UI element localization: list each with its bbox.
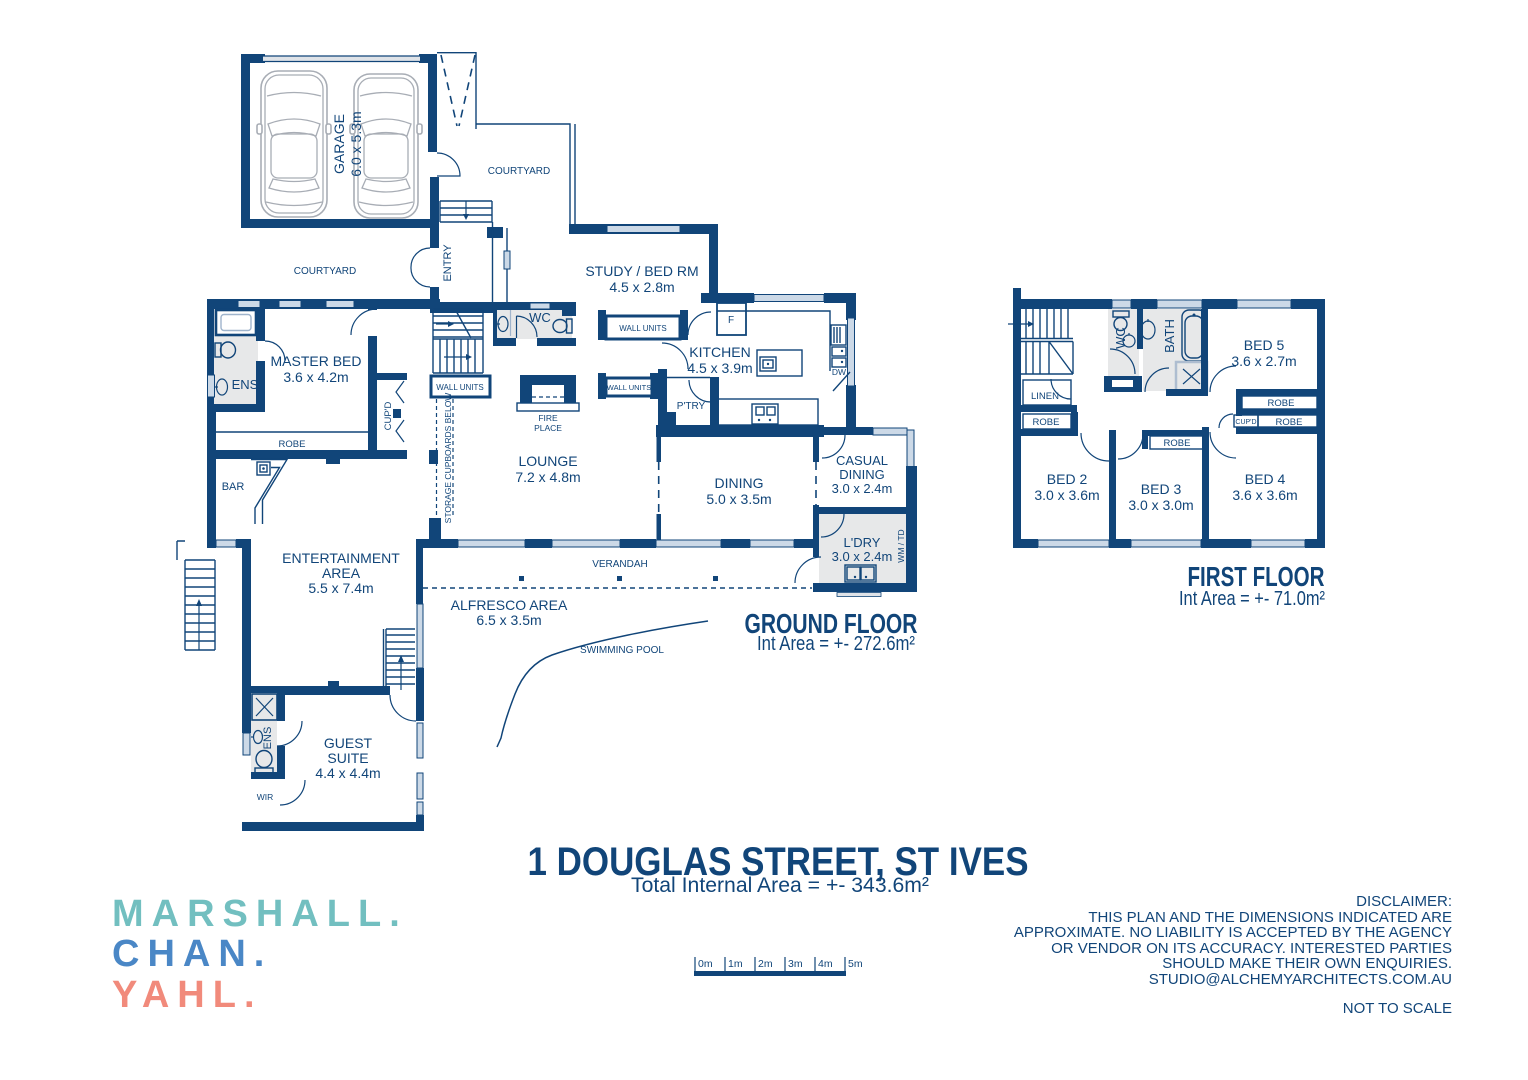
svg-text:WALL UNITS: WALL UNITS: [607, 383, 651, 392]
svg-text:3.0 x 2.4m: 3.0 x 2.4m: [832, 549, 893, 564]
svg-text:1m: 1m: [728, 958, 743, 970]
svg-text:3.0 x 3.6m: 3.0 x 3.6m: [1034, 487, 1099, 503]
svg-text:ENS: ENS: [262, 727, 274, 750]
svg-text:WM / TD: WM / TD: [896, 529, 906, 562]
svg-text:DISCLAIMER:: DISCLAIMER:: [1356, 893, 1452, 910]
svg-text:4.5 x 2.8m: 4.5 x 2.8m: [609, 279, 674, 295]
svg-text:STORAGE CUPBOARDS BELOW: STORAGE CUPBOARDS BELOW: [443, 393, 453, 524]
svg-text:CUP'D: CUP'D: [1235, 419, 1256, 426]
svg-text:P'TRY: P'TRY: [677, 401, 706, 412]
svg-text:SUITE: SUITE: [327, 750, 368, 766]
svg-text:CUP'D: CUP'D: [383, 401, 394, 430]
svg-text:LOUNGE: LOUNGE: [518, 453, 577, 469]
svg-text:3.0 x 2.4m: 3.0 x 2.4m: [832, 481, 893, 496]
svg-text:5.5 x 7.4m: 5.5 x 7.4m: [308, 580, 373, 596]
svg-text:STUDY / BED RM: STUDY / BED RM: [585, 263, 698, 279]
svg-text:WALL UNITS: WALL UNITS: [619, 324, 666, 333]
svg-text:7.2 x 4.8m: 7.2 x 4.8m: [515, 469, 580, 485]
svg-text:GARAGE: GARAGE: [331, 114, 347, 174]
svg-text:WC: WC: [529, 310, 551, 325]
svg-text:FIRE: FIRE: [538, 413, 558, 423]
svg-text:GUEST: GUEST: [324, 735, 373, 751]
svg-text:YAHL.: YAHL.: [112, 974, 263, 1016]
svg-text:COURTYARD: COURTYARD: [488, 166, 550, 177]
svg-text:BED 2: BED 2: [1047, 471, 1088, 487]
svg-text:BED 3: BED 3: [1141, 481, 1182, 497]
svg-text:ROBE: ROBE: [279, 439, 306, 450]
svg-text:4.5 x 3.9m: 4.5 x 3.9m: [687, 360, 752, 376]
svg-text:LINEN: LINEN: [1031, 391, 1059, 402]
svg-text:ENTERTAINMENT: ENTERTAINMENT: [282, 550, 400, 566]
svg-text:VERANDAH: VERANDAH: [592, 559, 648, 570]
svg-text:ROBE: ROBE: [1268, 398, 1295, 409]
svg-text:CHAN.: CHAN.: [112, 933, 272, 975]
svg-text:SHOULD MAKE THEIR OWN ENQUIRIE: SHOULD MAKE THEIR OWN ENQUIRIES.: [1162, 955, 1452, 972]
svg-text:SWIMMING POOL: SWIMMING POOL: [580, 645, 664, 656]
svg-text:CASUAL: CASUAL: [836, 453, 888, 468]
svg-text:3.0 x 3.0m: 3.0 x 3.0m: [1128, 497, 1193, 513]
svg-text:L'DRY: L'DRY: [844, 535, 881, 550]
svg-text:3.6 x 2.7m: 3.6 x 2.7m: [1231, 353, 1296, 369]
svg-text:Total Internal Area = +- 343.6: Total Internal Area = +- 343.6m²: [631, 874, 929, 897]
svg-text:0m: 0m: [698, 958, 713, 970]
svg-text:BATH: BATH: [1162, 319, 1177, 353]
svg-text:6.5 x 3.5m: 6.5 x 3.5m: [476, 612, 541, 628]
svg-text:4m: 4m: [818, 958, 833, 970]
svg-text:BED 4: BED 4: [1245, 471, 1286, 487]
svg-text:Int Area = +- 71.0m²: Int Area = +- 71.0m²: [1179, 588, 1325, 610]
svg-text:6.0 x 5.3m: 6.0 x 5.3m: [348, 111, 364, 176]
svg-text:DW: DW: [832, 367, 846, 377]
svg-text:APPROXIMATE. NO LIABILITY IS A: APPROXIMATE. NO LIABILITY IS ACCEPTED BY…: [1014, 924, 1452, 941]
svg-text:BED 5: BED 5: [1244, 337, 1285, 353]
svg-text:5.0 x 3.5m: 5.0 x 3.5m: [706, 491, 771, 507]
svg-text:ENTRY: ENTRY: [442, 244, 454, 282]
svg-text:KITCHEN: KITCHEN: [689, 344, 750, 360]
svg-text:3.6 x 4.2m: 3.6 x 4.2m: [283, 369, 348, 385]
svg-text:4.4 x 4.4m: 4.4 x 4.4m: [315, 765, 380, 781]
svg-text:COURTYARD: COURTYARD: [294, 266, 356, 277]
svg-text:NOT TO SCALE: NOT TO SCALE: [1343, 1000, 1452, 1017]
svg-text:PLACE: PLACE: [534, 423, 562, 433]
svg-text:ROBE: ROBE: [1276, 417, 1303, 428]
svg-text:ROBE: ROBE: [1164, 438, 1191, 449]
svg-text:AREA: AREA: [322, 565, 361, 581]
svg-text:ALFRESCO AREA: ALFRESCO AREA: [451, 597, 568, 613]
svg-text:DINING: DINING: [839, 467, 885, 482]
svg-text:MARSHALL.: MARSHALL.: [112, 893, 408, 935]
svg-text:WALL UNITS: WALL UNITS: [436, 383, 483, 392]
svg-text:3m: 3m: [788, 958, 803, 970]
svg-text:ENS: ENS: [232, 377, 259, 392]
svg-text:3.6 x 3.6m: 3.6 x 3.6m: [1232, 487, 1297, 503]
svg-text:Int Area = +- 272.6m²: Int Area = +- 272.6m²: [757, 633, 915, 655]
svg-text:WIR: WIR: [257, 792, 274, 802]
svg-text:F: F: [728, 315, 734, 326]
svg-text:STUDIO@ALCHEMYARCHITECTS.COM.A: STUDIO@ALCHEMYARCHITECTS.COM.AU: [1149, 971, 1452, 988]
svg-text:BAR: BAR: [222, 481, 245, 493]
svg-text:ROBE: ROBE: [1033, 417, 1060, 428]
svg-text:2m: 2m: [758, 958, 773, 970]
svg-text:5m: 5m: [848, 958, 863, 970]
svg-text:WC: WC: [1113, 327, 1128, 349]
svg-text:DINING: DINING: [715, 475, 764, 491]
